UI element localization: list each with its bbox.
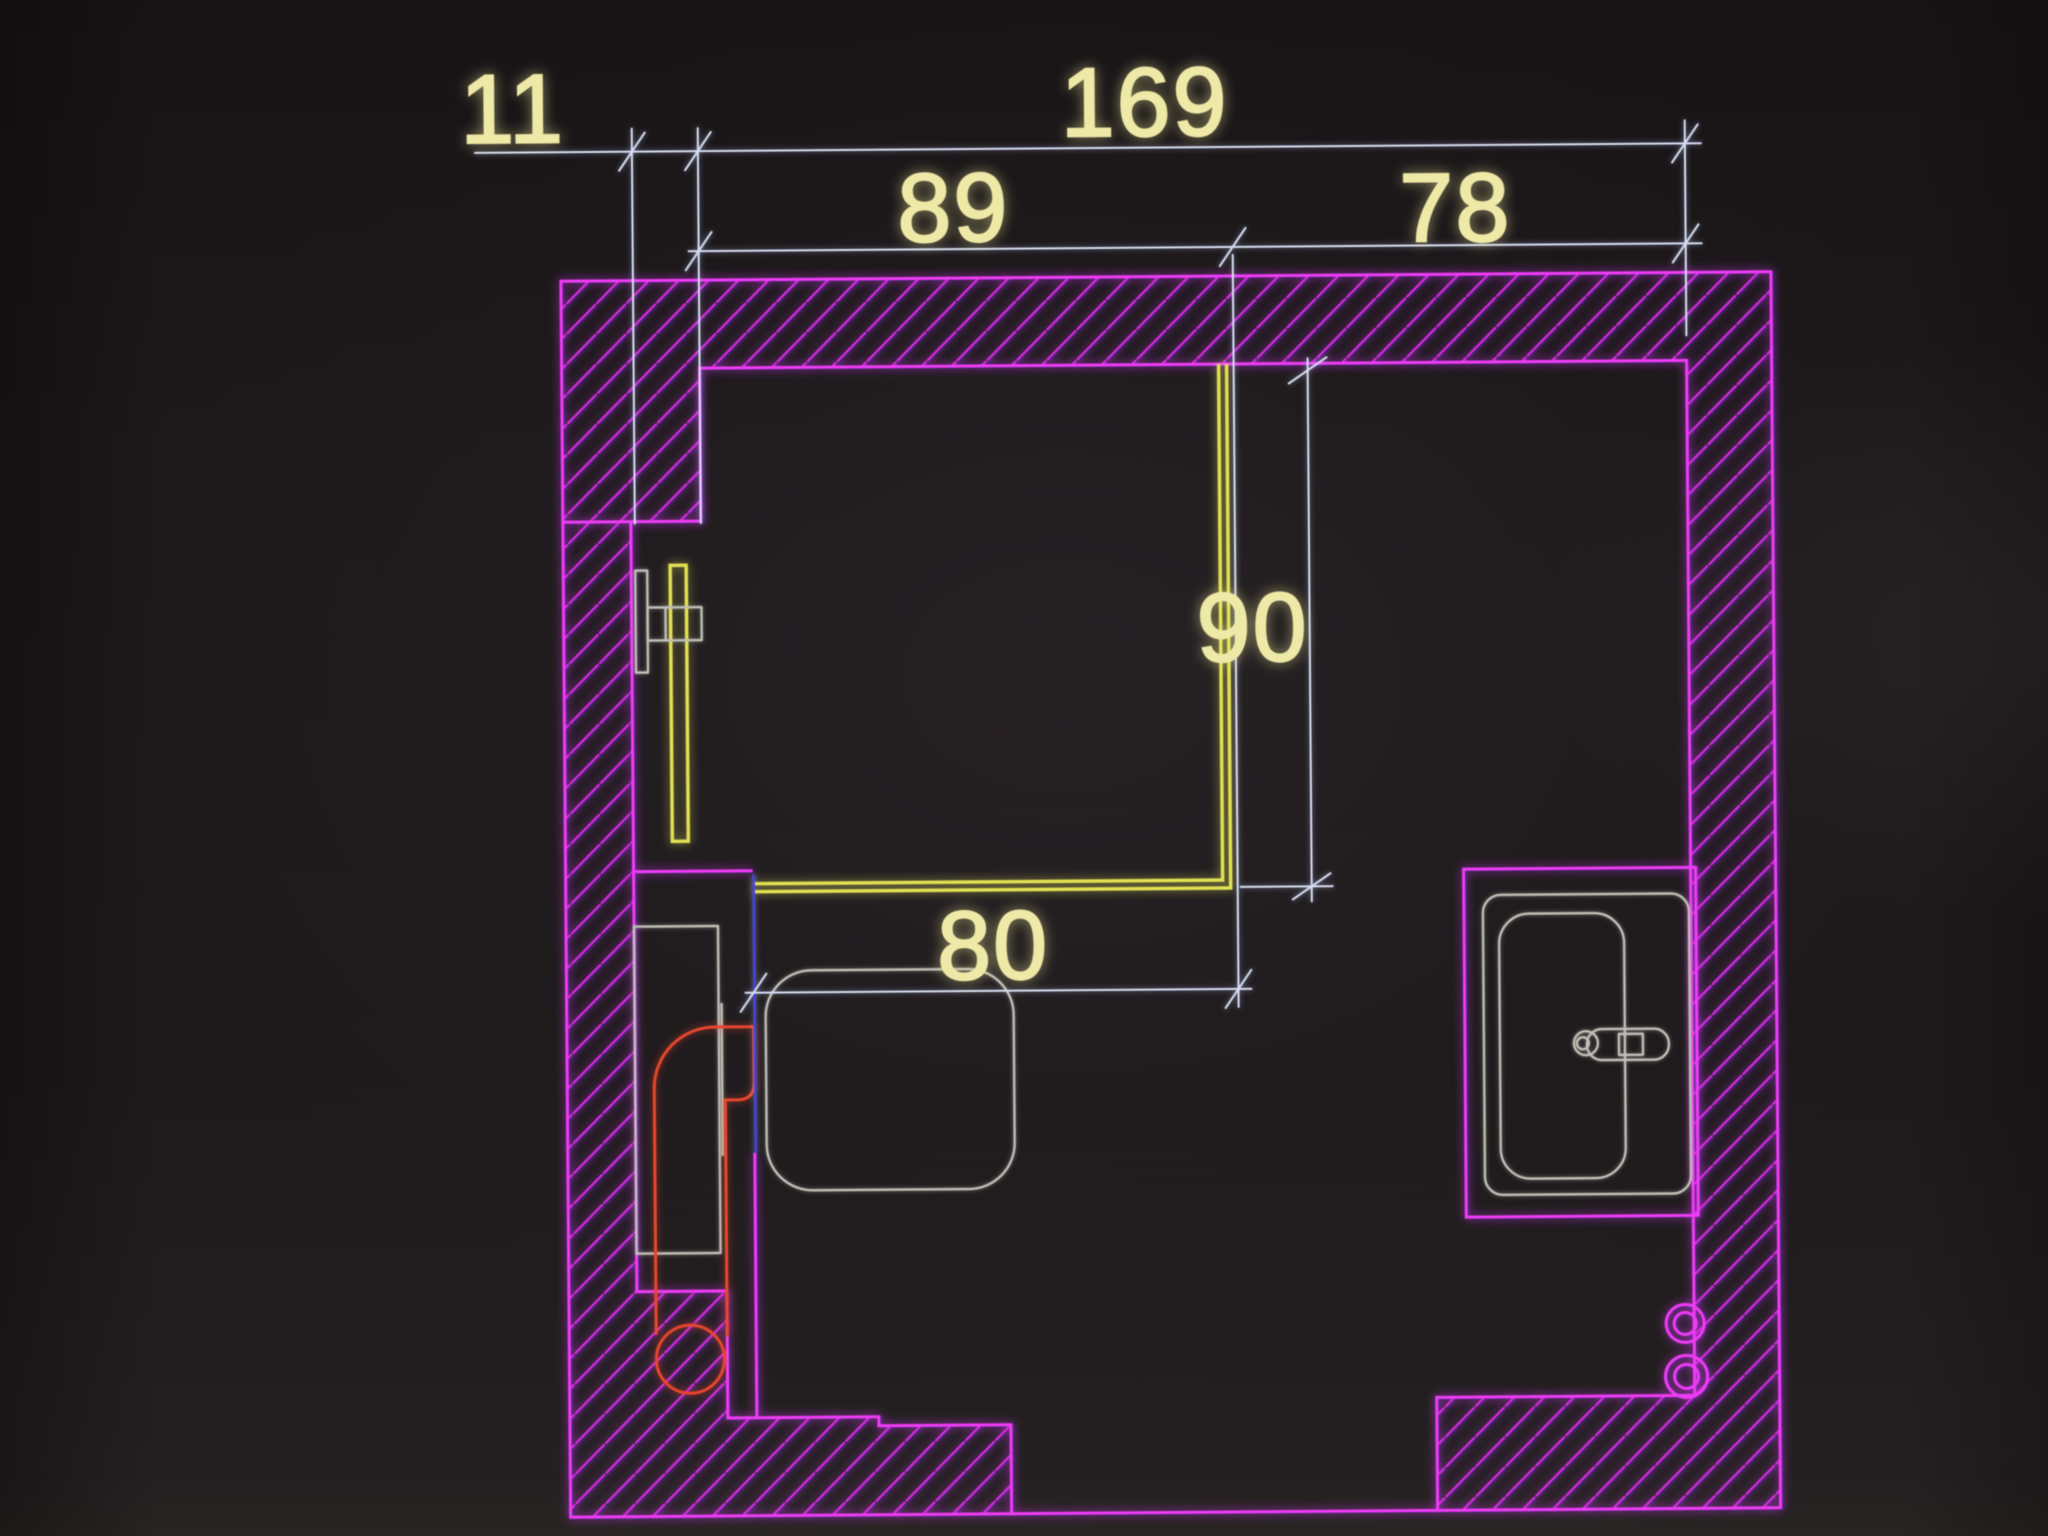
supply-pipe-left	[654, 1027, 756, 1334]
dim-label-pier: 11	[460, 54, 566, 164]
faucet	[1574, 1029, 1669, 1061]
shower-glass-inner	[749, 364, 1223, 884]
supply-pipe-right	[725, 1027, 756, 1335]
toilet-bowl	[765, 969, 1015, 1191]
toilet-cistern	[634, 926, 721, 1254]
dim-label-shower-depth: 90	[1196, 572, 1309, 682]
door-threshold-line	[1012, 1510, 1438, 1513]
washbasin	[1483, 893, 1691, 1195]
pier-separation-line	[563, 521, 701, 522]
shower-enclosure	[749, 364, 1231, 892]
screen-photo: 11 169 89 78 90 80	[0, 0, 2048, 1536]
wc-partition-line	[755, 1153, 757, 1418]
wc-extension-blue	[754, 875, 756, 1153]
shower-glass-outer	[749, 364, 1231, 892]
dim-label-basin-width: 78	[1399, 153, 1512, 263]
dim-label-interior-width: 169	[1060, 47, 1229, 157]
dim-label-wc-width: 80	[937, 890, 1050, 1000]
wc-partition-cap	[634, 871, 753, 872]
sink-basin	[1499, 913, 1626, 1179]
floorplan-canvas: 11 169 89 78 90 80	[0, 0, 2048, 1536]
dim-label-shower-width: 89	[897, 153, 1010, 263]
